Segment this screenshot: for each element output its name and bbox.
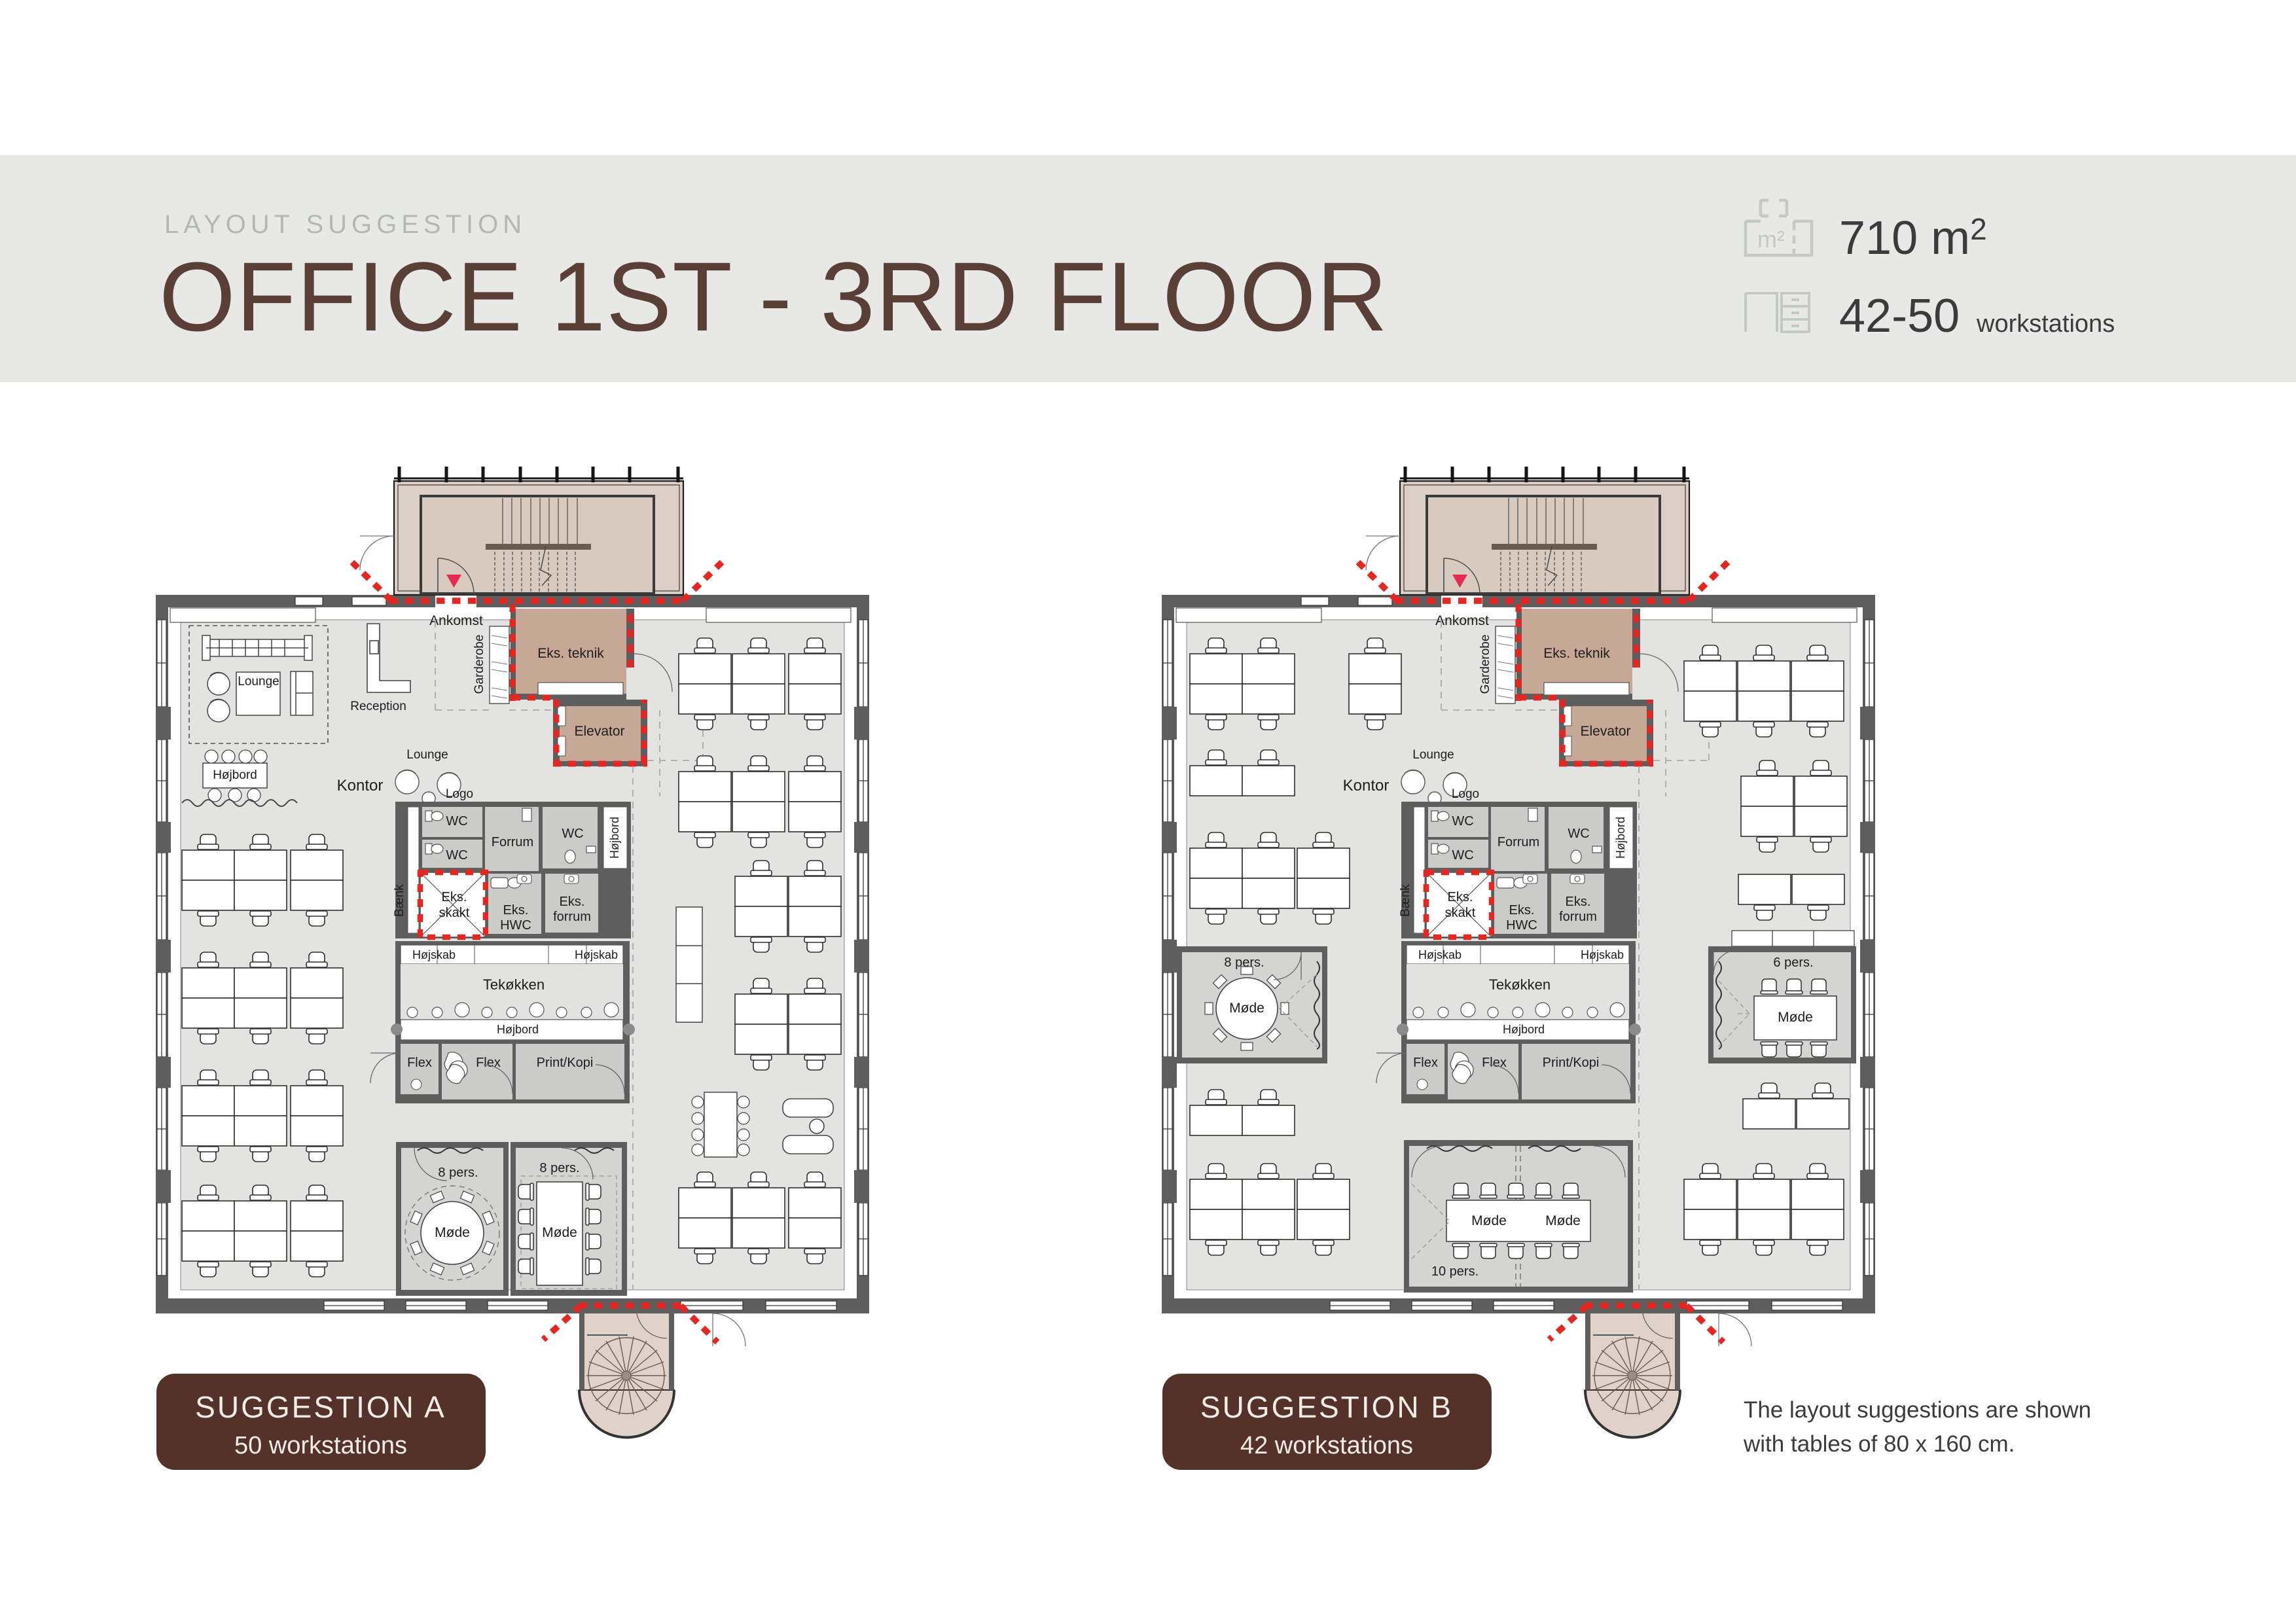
svg-text:6 pers.: 6 pers.	[1773, 955, 1813, 970]
svg-text:LAYOUT SUGGESTION: LAYOUT SUGGESTION	[164, 210, 526, 239]
svg-text:Møde: Møde	[1545, 1213, 1581, 1228]
svg-text:8 pers.: 8 pers.	[539, 1161, 579, 1175]
svg-text:Møde: Møde	[435, 1225, 470, 1240]
svg-text:42-50: 42-50	[1839, 290, 1960, 342]
svg-text:Møde: Møde	[542, 1225, 577, 1240]
svg-text:10 pers.: 10 pers.	[1431, 1264, 1479, 1279]
svg-text:Møde: Møde	[1778, 1010, 1813, 1025]
svg-text:Reception: Reception	[350, 700, 406, 713]
svg-text:m²: m²	[1757, 226, 1785, 253]
svg-text:Møde: Møde	[1471, 1213, 1507, 1228]
svg-text:50 workstations: 50 workstations	[234, 1432, 407, 1459]
svg-text:OFFICE 1ST - 3RD FLOOR: OFFICE 1ST - 3RD FLOOR	[159, 241, 1388, 351]
svg-text:Møde: Møde	[1229, 1001, 1265, 1016]
svg-text:The layout suggestions are sho: The layout suggestions are shown	[1744, 1397, 2091, 1423]
svg-text:with tables of 80 x 160 cm.: with tables of 80 x 160 cm.	[1743, 1431, 2015, 1457]
svg-text:710 m2: 710 m2	[1839, 212, 1987, 264]
svg-text:42 workstations: 42 workstations	[1240, 1432, 1413, 1459]
svg-text:8 pers.: 8 pers.	[438, 1166, 478, 1180]
svg-text:SUGGESTION A: SUGGESTION A	[195, 1390, 446, 1424]
svg-text:workstations: workstations	[1976, 310, 2115, 338]
svg-text:Højbord: Højbord	[213, 768, 257, 782]
svg-text:Lounge: Lounge	[238, 675, 279, 688]
svg-text:SUGGESTION B: SUGGESTION B	[1200, 1390, 1453, 1424]
